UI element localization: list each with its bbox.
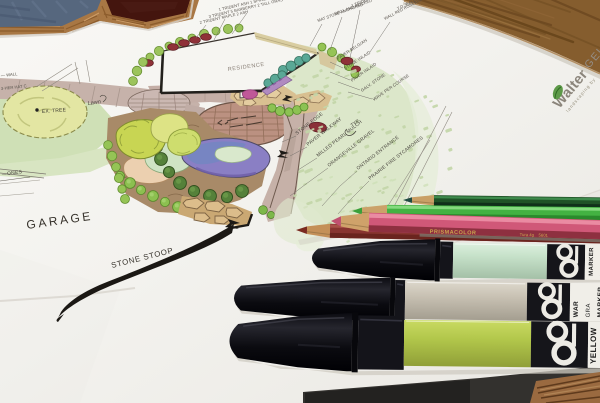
svg-text:WAR: WAR	[573, 301, 580, 317]
svg-text:GRA: GRA	[586, 303, 592, 317]
svg-text:Tura 4g 5601: Tura 4g 5601	[520, 232, 549, 238]
svg-text:MARKER: MARKER	[589, 247, 595, 276]
svg-text:YELLOW: YELLOW	[589, 327, 598, 364]
